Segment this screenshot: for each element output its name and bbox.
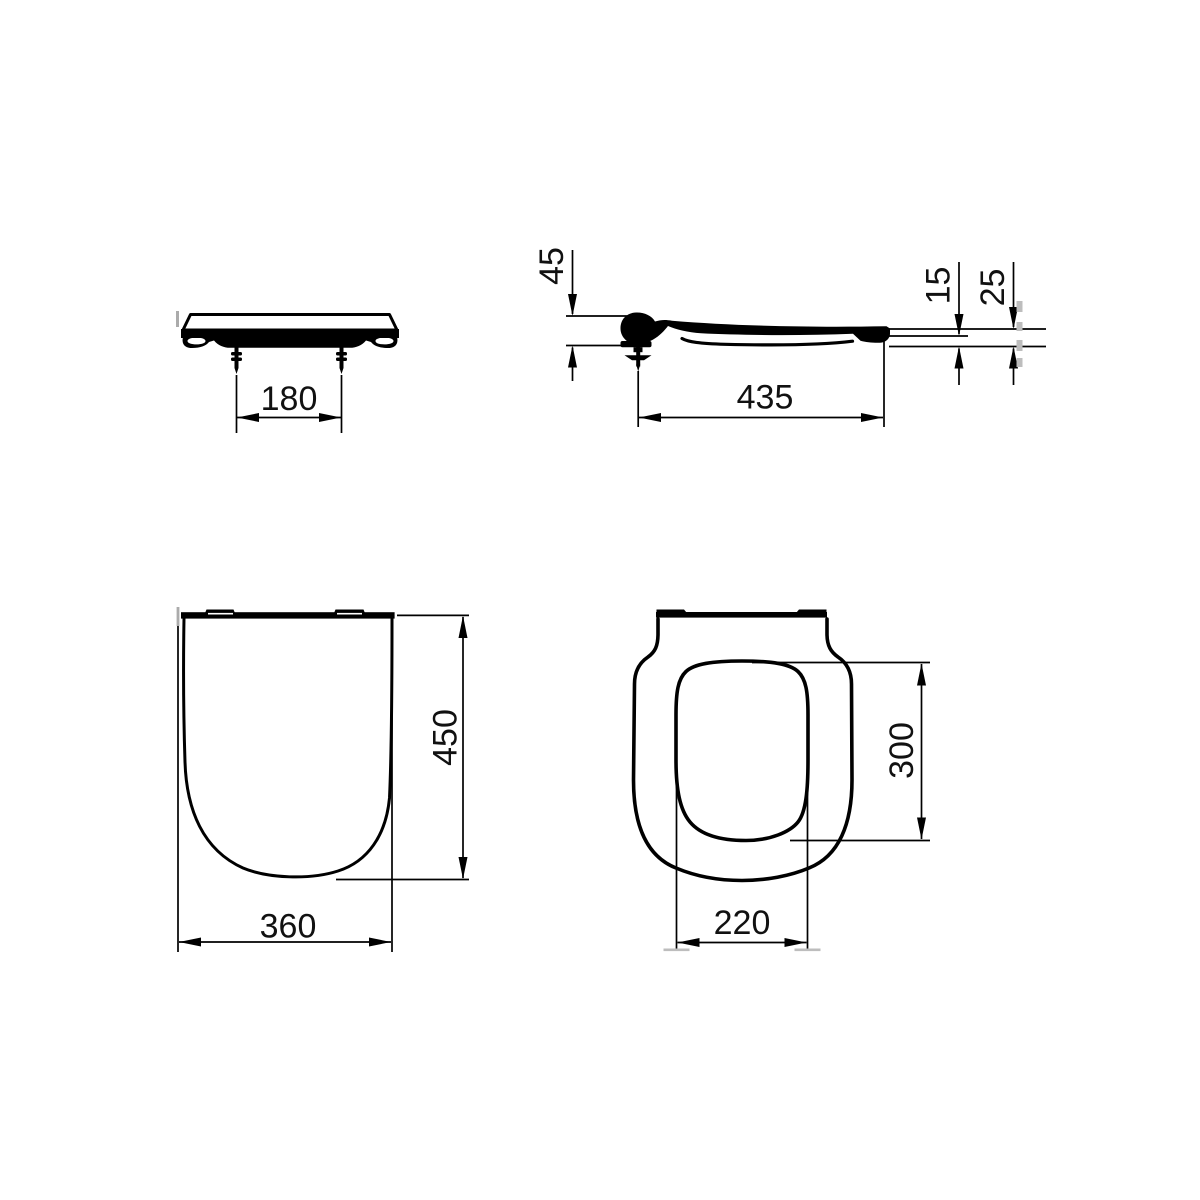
side-view: 45 435 bbox=[533, 247, 1046, 427]
dim-label-15: 15 bbox=[920, 267, 958, 305]
hinge-flange bbox=[621, 341, 652, 347]
hinge-bolt bbox=[625, 347, 652, 372]
dimension-front-total-height-25: 25 bbox=[974, 262, 1018, 385]
dim-label-45: 45 bbox=[533, 247, 571, 285]
dim-label-360: 360 bbox=[260, 908, 317, 946]
seat-ring-under-edge bbox=[682, 339, 853, 345]
dim-label-450: 450 bbox=[427, 709, 465, 766]
dimension-opening-width-220: 220 bbox=[664, 765, 821, 951]
fixing-bolt-right bbox=[336, 346, 347, 374]
dimension-overall-width-360: 360 bbox=[179, 908, 391, 947]
seat-profile-silhouette bbox=[621, 313, 891, 345]
dimension-drawing-canvas: 180 45 bbox=[0, 0, 1200, 1200]
fixing-bolt-left bbox=[231, 346, 242, 374]
seat-edge-band-front bbox=[181, 329, 399, 338]
scan-artifact-mark bbox=[177, 607, 180, 626]
ring-hinge-tab-right bbox=[794, 610, 827, 618]
seat-top-surface-front bbox=[183, 315, 397, 331]
dimension-hinge-height-45: 45 bbox=[533, 247, 645, 381]
front-view: 180 bbox=[176, 311, 399, 433]
scan-artifact-dashes bbox=[1017, 301, 1023, 367]
dimension-front-thickness-15: 15 bbox=[920, 262, 964, 385]
cover-outline bbox=[184, 619, 392, 877]
dimension-seat-depth-435: 435 bbox=[638, 341, 884, 427]
scan-artifact-mark bbox=[176, 311, 179, 327]
plan-view-ring: 300 220 bbox=[634, 610, 931, 952]
seat-underside-front bbox=[183, 337, 398, 348]
dimension-opening-length-300: 300 bbox=[752, 663, 930, 841]
dim-label-300: 300 bbox=[883, 722, 921, 779]
dim-label-220: 220 bbox=[714, 904, 771, 942]
dim-label-25: 25 bbox=[974, 269, 1012, 307]
dimension-bolt-spacing-180: 180 bbox=[237, 375, 342, 433]
scan-artifact-mark bbox=[664, 949, 690, 952]
plan-view-cover: 450 360 bbox=[177, 607, 469, 952]
cover-hinge-tab-left bbox=[203, 610, 237, 619]
dim-label-180: 180 bbox=[261, 380, 318, 418]
cover-hinge-tab-right bbox=[332, 610, 367, 619]
scan-artifact-mark bbox=[795, 949, 821, 952]
technical-drawing-sheet: 180 45 bbox=[0, 0, 1200, 1200]
dim-label-435: 435 bbox=[737, 379, 794, 417]
ring-opening-outline bbox=[676, 661, 808, 841]
ring-hinge-tab-left bbox=[657, 610, 690, 618]
